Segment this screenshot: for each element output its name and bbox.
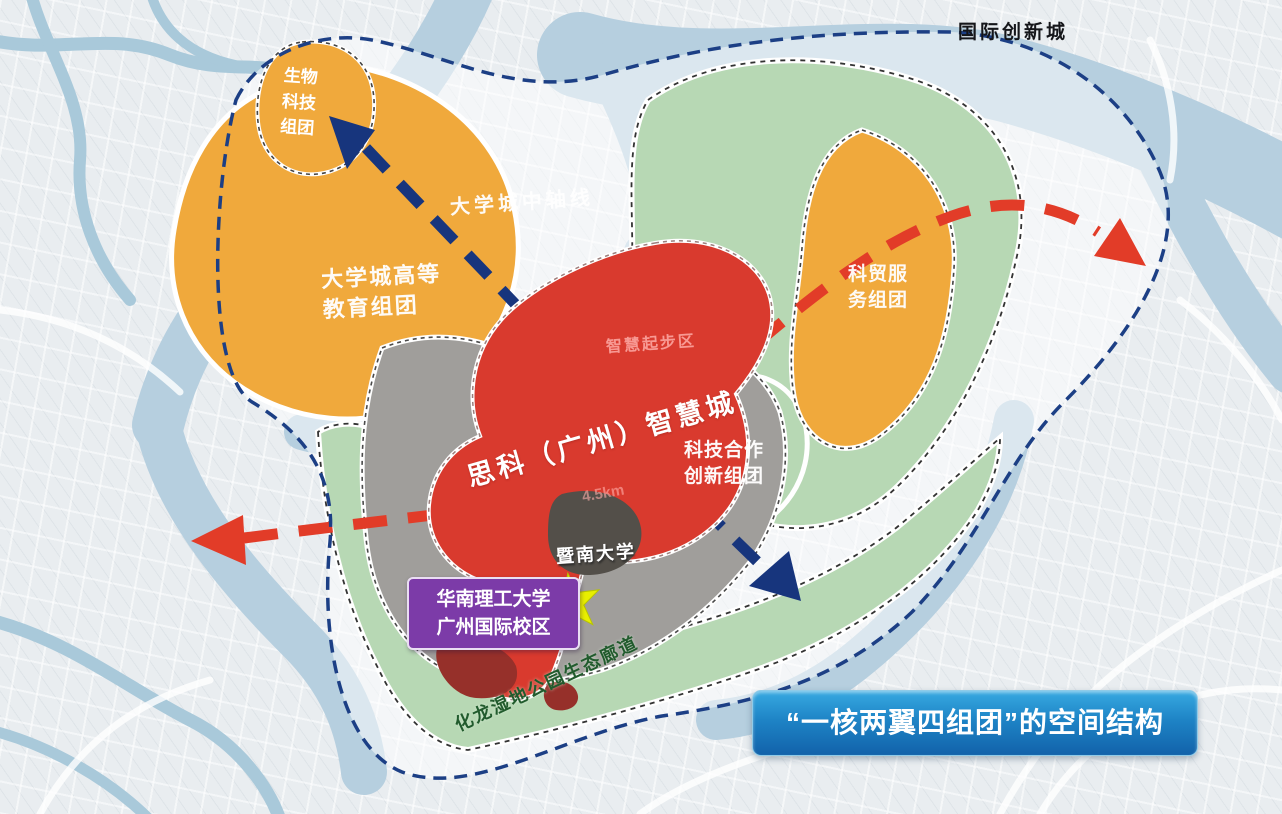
stream-southwest-2 bbox=[0, 730, 150, 814]
label-scitech-coop-cluster: 科技合作 创新组团 bbox=[684, 438, 764, 489]
label-biotech-line1: 生物 bbox=[275, 62, 327, 91]
label-biotech-cluster: 生物 科技 组团 bbox=[271, 62, 326, 142]
label-biotech-line3: 组团 bbox=[271, 113, 323, 142]
scut-campus-box: 华南理工大学 广州国际校区 bbox=[407, 577, 580, 650]
stream-southwest-1 bbox=[0, 620, 280, 814]
scut-box-line2: 广州国际校区 bbox=[413, 614, 574, 642]
label-trade-line2: 务组团 bbox=[848, 288, 908, 314]
label-higher-ed-line1: 大学城高等 bbox=[321, 259, 442, 295]
label-higher-ed-cluster: 大学城高等 教育组团 bbox=[321, 259, 444, 325]
label-coop-line2: 创新组团 bbox=[684, 464, 764, 490]
scut-box-line1: 华南理工大学 bbox=[413, 586, 574, 614]
label-trade-service-cluster: 科贸服 务组团 bbox=[848, 262, 908, 313]
label-coop-line1: 科技合作 bbox=[684, 438, 764, 464]
planning-map: 国际创新城 生物 科技 组团 大学城中轴线 大学城高等 教育组团 科贸服 务组团… bbox=[0, 0, 1282, 814]
label-higher-ed-line2: 教育组团 bbox=[322, 289, 443, 325]
spatial-structure-banner: “一核两翼四组团”的空间结构 bbox=[752, 690, 1198, 756]
label-trade-line1: 科贸服 bbox=[848, 262, 908, 288]
label-international-innovation-city: 国际创新城 bbox=[958, 20, 1068, 46]
label-biotech-line2: 科技 bbox=[273, 88, 325, 117]
